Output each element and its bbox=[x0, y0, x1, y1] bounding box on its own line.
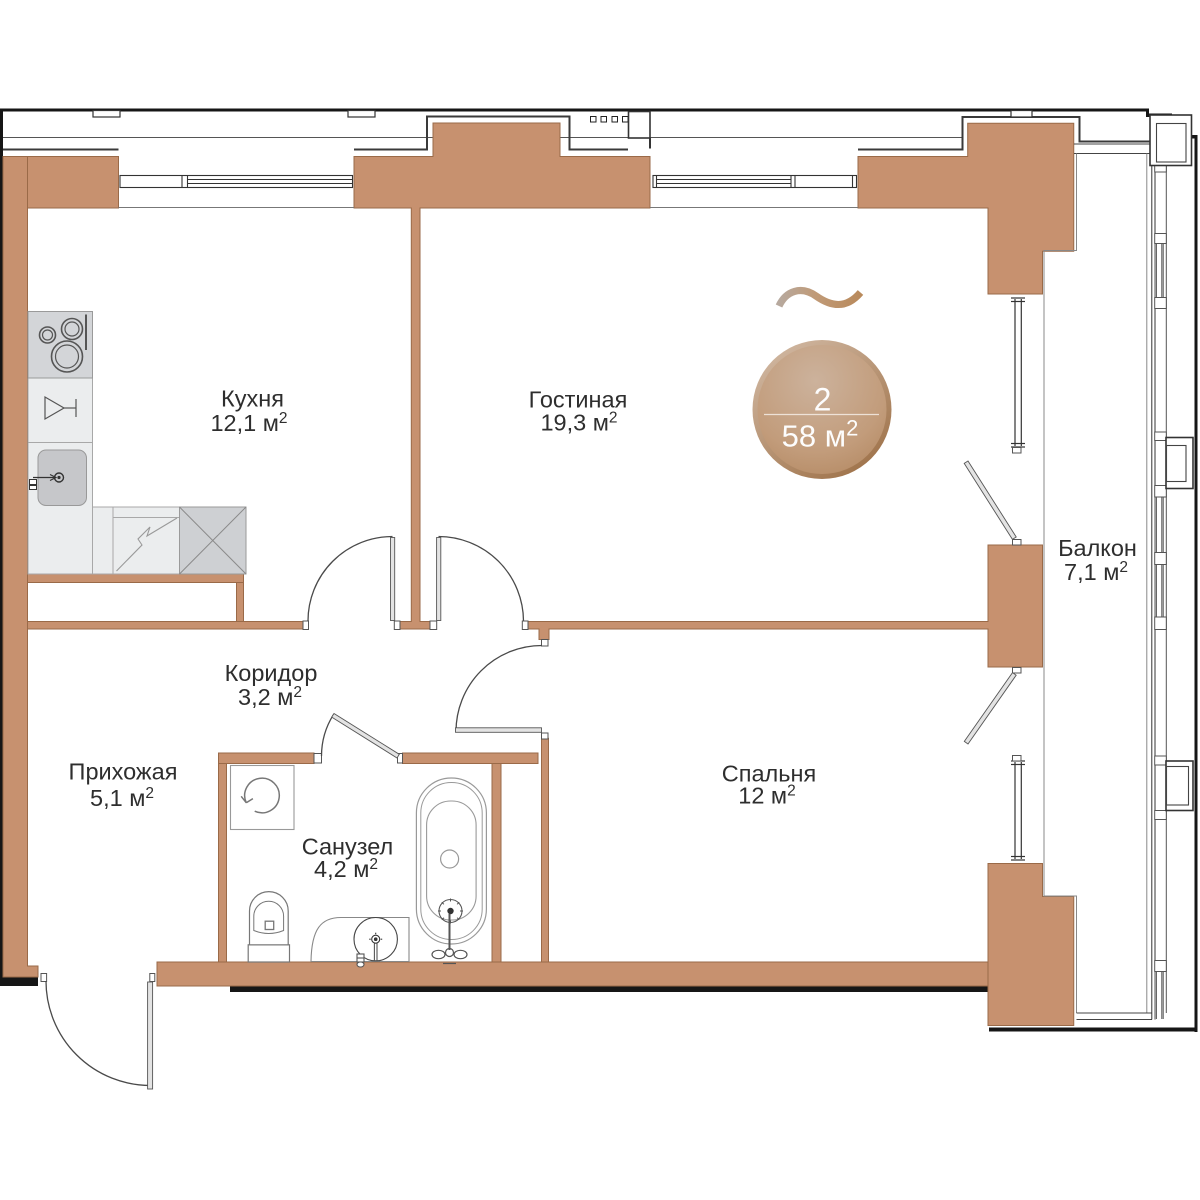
svg-text:7,1 м2: 7,1 м2 bbox=[1064, 559, 1128, 585]
svg-text:19,3 м2: 19,3 м2 bbox=[540, 410, 617, 436]
svg-text:3,2 м2: 3,2 м2 bbox=[238, 684, 302, 710]
svg-text:Балкон: Балкон bbox=[1058, 535, 1137, 561]
svg-text:Коридор: Коридор bbox=[225, 660, 318, 686]
svg-text:5,1 м2: 5,1 м2 bbox=[90, 785, 154, 811]
svg-text:12 м2: 12 м2 bbox=[738, 783, 795, 809]
svg-text:Кухня: Кухня bbox=[221, 386, 284, 412]
svg-text:12,1 м2: 12,1 м2 bbox=[210, 410, 287, 436]
svg-text:4,2 м2: 4,2 м2 bbox=[314, 856, 378, 882]
svg-text:Прихожая: Прихожая bbox=[69, 759, 178, 785]
svg-text:2: 2 bbox=[814, 382, 832, 418]
